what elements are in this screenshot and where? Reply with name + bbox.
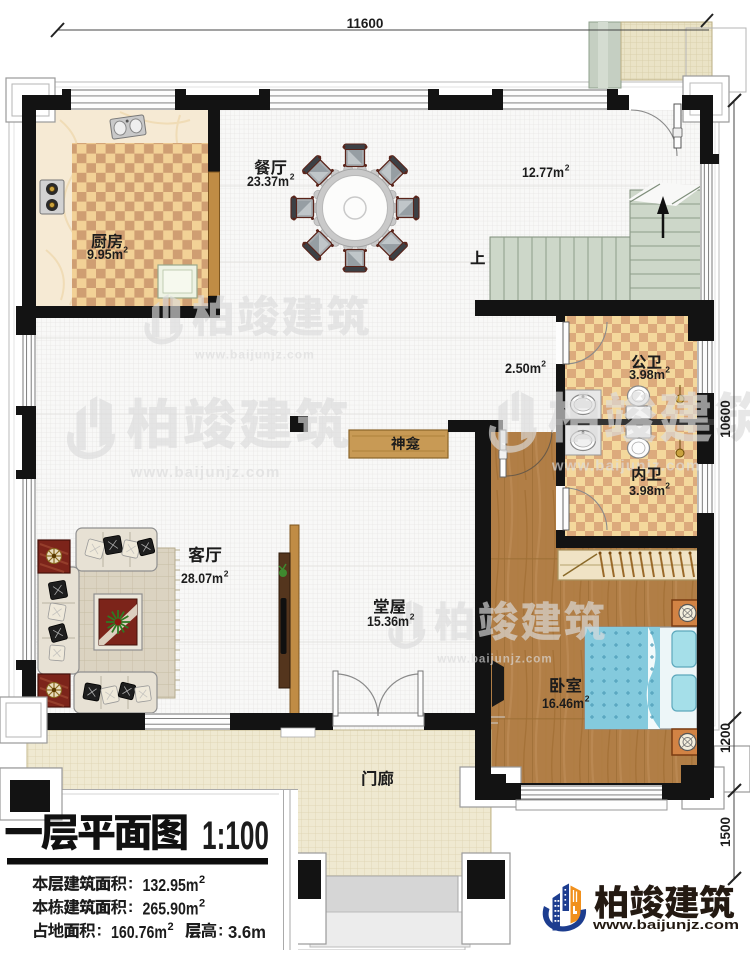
- svg-text:12.77m: 12.77m: [522, 164, 564, 180]
- svg-text:www.baijunjz.com: www.baijunjz.com: [436, 652, 552, 665]
- svg-text:2: 2: [565, 163, 570, 173]
- svg-text:2: 2: [410, 612, 415, 622]
- svg-text:28.07m: 28.07m: [181, 571, 223, 586]
- svg-text:2: 2: [123, 245, 128, 255]
- svg-text:2: 2: [199, 874, 205, 886]
- svg-text:160.76m: 160.76m: [111, 922, 167, 942]
- svg-text:23.37m: 23.37m: [247, 174, 289, 189]
- svg-text::: :: [97, 922, 103, 940]
- svg-text:265.90m: 265.90m: [143, 899, 199, 919]
- svg-text:10600: 10600: [718, 400, 733, 438]
- svg-text:www.baijunjz.com: www.baijunjz.com: [592, 917, 739, 932]
- svg-text:2: 2: [199, 898, 205, 910]
- svg-text:3.98m: 3.98m: [629, 367, 665, 382]
- svg-text:3.6m: 3.6m: [228, 922, 266, 942]
- svg-text:16.46m: 16.46m: [542, 696, 584, 711]
- svg-text:www.baijunjz.com: www.baijunjz.com: [130, 464, 281, 481]
- svg-text:2: 2: [541, 359, 546, 369]
- svg-text:11600: 11600: [347, 16, 384, 31]
- svg-text:2: 2: [224, 569, 229, 579]
- svg-text:1500: 1500: [718, 817, 733, 847]
- svg-text:9.95m: 9.95m: [87, 247, 123, 262]
- svg-text:132.95m: 132.95m: [143, 875, 199, 895]
- svg-text:2: 2: [168, 921, 174, 933]
- svg-text:www.baijunjz.com: www.baijunjz.com: [194, 348, 315, 362]
- svg-text::: :: [128, 898, 133, 916]
- svg-text:15.36m: 15.36m: [367, 614, 409, 629]
- svg-text:2: 2: [665, 365, 670, 375]
- svg-text:2: 2: [665, 481, 670, 491]
- svg-text:2.50m: 2.50m: [505, 360, 541, 376]
- svg-text::: :: [128, 875, 133, 893]
- svg-text:www.baijunjz.com: www.baijunjz.com: [551, 457, 701, 474]
- svg-text:3.98m: 3.98m: [629, 483, 665, 498]
- svg-text:2: 2: [290, 172, 295, 182]
- svg-text:1200: 1200: [718, 723, 733, 753]
- svg-text::: :: [218, 922, 224, 940]
- svg-text:1:100: 1:100: [202, 814, 269, 858]
- svg-text:2: 2: [585, 694, 590, 704]
